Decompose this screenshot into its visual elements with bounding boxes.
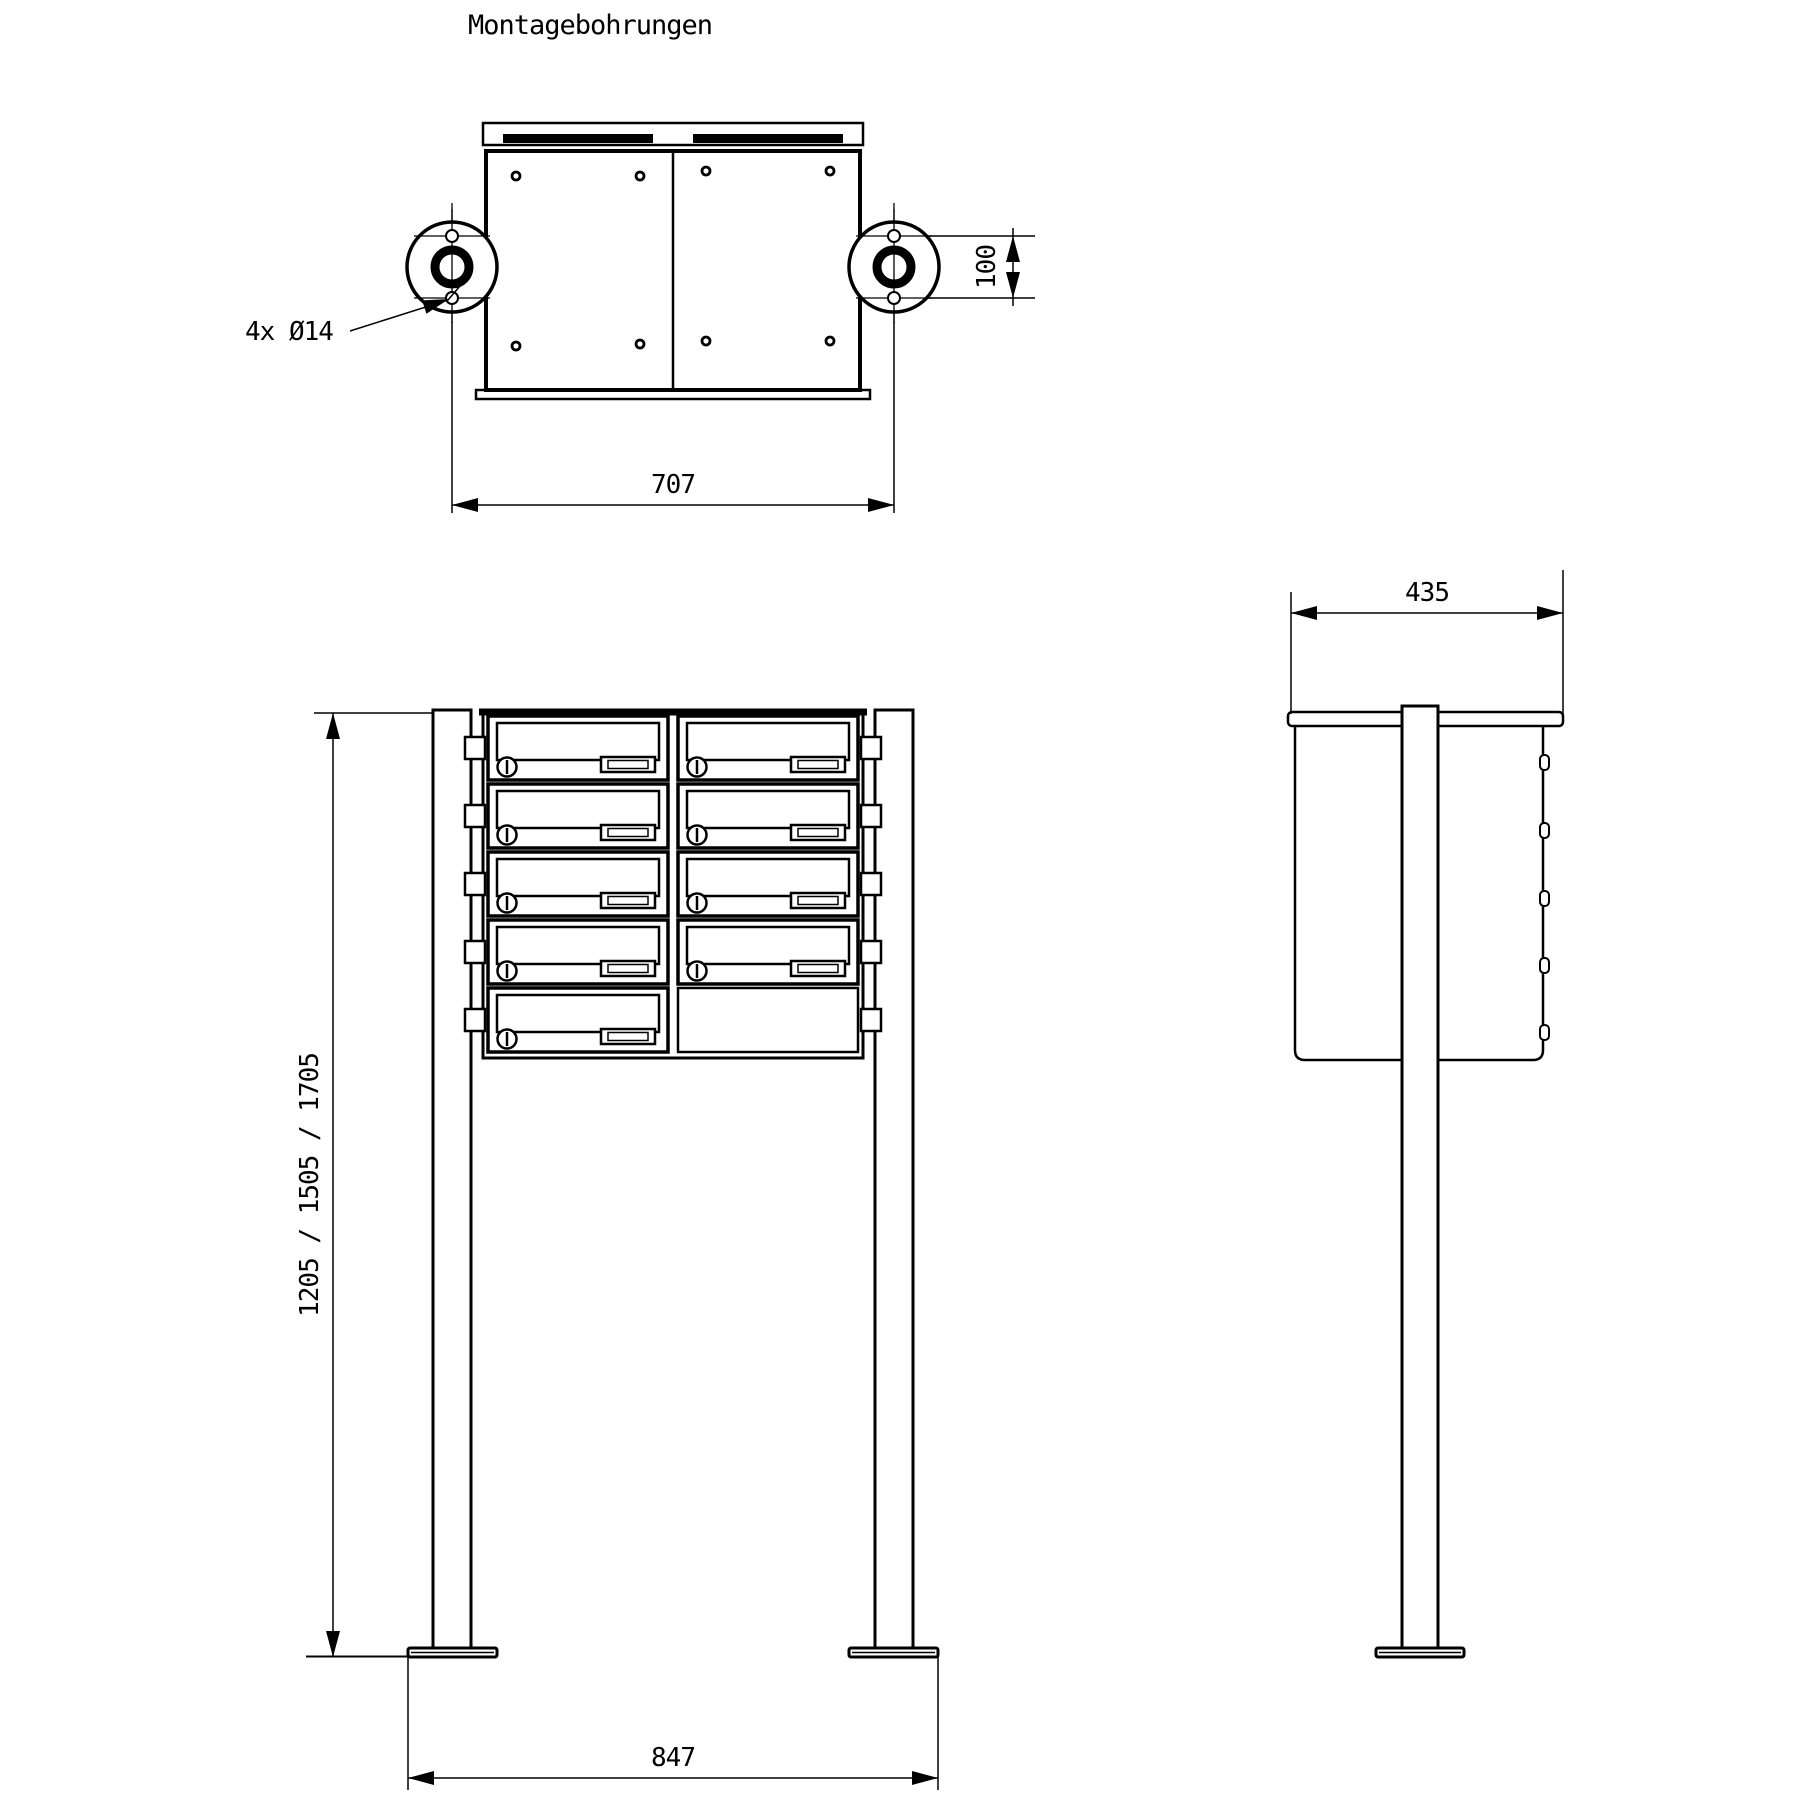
mailbox-cell xyxy=(488,784,668,848)
side-view: 435 xyxy=(1288,570,1563,1657)
mailbox-cell xyxy=(678,920,858,984)
front-post-right xyxy=(875,710,913,1648)
mail-slot-right xyxy=(693,134,843,143)
drawing-title: Montagebohrungen xyxy=(468,10,712,41)
base-plate-right xyxy=(849,1648,938,1657)
mounting-plate-left xyxy=(407,203,497,323)
mailbox-cell xyxy=(488,716,668,780)
mail-slot-left xyxy=(503,134,653,143)
dimension-depth: 435 xyxy=(1291,570,1563,714)
blank-panel xyxy=(678,988,858,1052)
mailbox-cell xyxy=(678,716,858,780)
mailbox-cell xyxy=(678,784,858,848)
dim-435-label: 435 xyxy=(1405,578,1449,608)
hole-callout-label: 4x Ø14 xyxy=(245,317,333,347)
mailbox-cell xyxy=(488,852,668,916)
mounting-plate-right xyxy=(849,203,939,323)
mailbox-cell xyxy=(678,852,858,916)
dim-100-label: 100 xyxy=(972,245,1002,289)
base-plate-left xyxy=(408,1648,497,1657)
dimension-hole-spacing: 100 xyxy=(972,228,1020,306)
dimension-base-width: 847 xyxy=(408,1657,938,1790)
side-base-plate xyxy=(1376,1648,1464,1657)
technical-drawing-page: Montagebohrungen 100 xyxy=(0,0,1800,1800)
dim-847-label: 847 xyxy=(651,1743,695,1773)
hinge-bumps xyxy=(1540,755,1549,1040)
dim-707-label: 707 xyxy=(651,470,695,500)
front-post-left xyxy=(433,710,471,1648)
dim-heights-label: 1205 / 1505 / 1705 xyxy=(295,1053,325,1317)
front-view: 1205 / 1505 / 1705 847 xyxy=(295,710,938,1790)
mailbox-cell xyxy=(488,988,668,1052)
mailbox-stand-drawing: Montagebohrungen 100 xyxy=(0,0,1800,1800)
side-post xyxy=(1402,706,1438,1648)
mailbox-cell xyxy=(488,920,668,984)
dimension-stand-height: 1205 / 1505 / 1705 xyxy=(295,713,433,1657)
top-view: 100 707 4x Ø14 xyxy=(245,123,1035,513)
